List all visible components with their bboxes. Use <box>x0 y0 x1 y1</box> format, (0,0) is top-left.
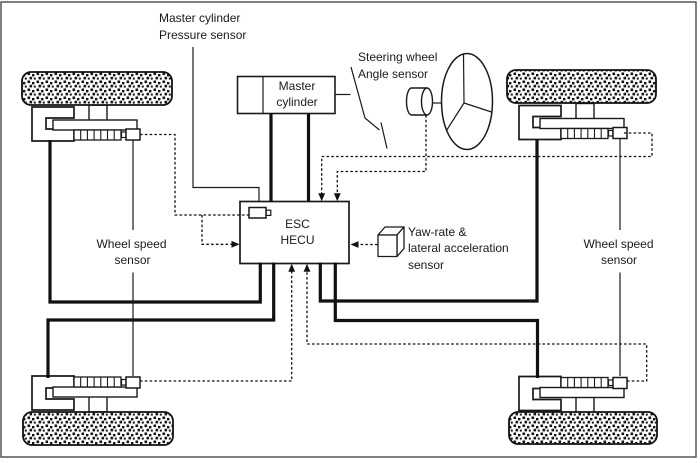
mc-pressure-sensor-label-line1: Master cylinder <box>159 11 240 25</box>
yaw-sensor-label-line3: sensor <box>408 258 444 272</box>
steering-angle-sensor-label-line1: Steering wheel <box>358 50 437 64</box>
wheel-speed-label-left-line1: Wheel speed <box>96 237 166 251</box>
master-cylinder-label-line1: Master <box>279 79 316 93</box>
tire-rear-left-icon <box>23 412 173 445</box>
brake-assembly-front-right <box>519 104 627 140</box>
brake-assembly-front-left <box>32 105 140 141</box>
brake-assembly-rear-left <box>32 376 140 412</box>
diagram-canvas: Master cylinder Pressure sensor Steering… <box>0 0 700 463</box>
arrowhead-rear-right-wss <box>304 264 311 272</box>
tire-front-right-icon <box>507 70 656 103</box>
hydraulic-line-front-right <box>320 140 537 301</box>
yaw-sensor-label-line2: lateral acceleration <box>408 241 509 255</box>
arrowhead-front-right-wss <box>318 193 325 201</box>
pressure-sensor-lead-line <box>193 47 259 202</box>
steering-angle-sensor-label-line2: Angle sensor <box>358 67 428 81</box>
esc-hecu-label-line1: ESC <box>285 217 310 231</box>
angle-sensor-icon <box>407 88 433 115</box>
wheel-speed-label-right-line1: Wheel speed <box>583 237 653 251</box>
arrowhead-yaw-sensor <box>351 241 359 248</box>
arrowhead-steering-angle <box>334 193 341 201</box>
hydraulic-line-rear-left <box>48 263 274 379</box>
brake-assembly-rear-right <box>519 377 627 413</box>
tire-rear-right-icon <box>509 412 657 444</box>
signal-line-front-left-wss-branch <box>202 215 232 244</box>
wheel-speed-label-right-line2: sensor <box>601 253 637 267</box>
tire-front-left-icon <box>22 72 172 105</box>
esc-hecu-label-line2: HECU <box>280 233 314 247</box>
signal-line-rear-left-wss <box>140 271 292 381</box>
hydraulic-line-rear-right <box>335 263 537 379</box>
arrowhead-rear-left-wss <box>288 264 295 272</box>
mc-pressure-sensor-label-line2: Pressure sensor <box>159 28 246 42</box>
signal-line-rear-right-wss <box>307 271 647 381</box>
signal-line-front-right-wss <box>322 133 652 194</box>
wheel-speed-label-left-line2: sensor <box>114 253 150 267</box>
hydraulic-line-front-left <box>50 140 260 302</box>
yaw-sensor-label-line1: Yaw-rate & <box>408 225 466 239</box>
yaw-rate-sensor-icon <box>378 227 404 257</box>
steering-wheel-icon <box>442 54 493 150</box>
steering-column-lower-line <box>381 123 387 149</box>
arrowhead-front-left-wss <box>232 241 240 248</box>
esc-system-diagram: Master cylinder Pressure sensor Steering… <box>0 0 700 463</box>
master-cylinder-label-line2: cylinder <box>276 95 317 109</box>
signal-line-front-left-wss <box>140 135 251 216</box>
